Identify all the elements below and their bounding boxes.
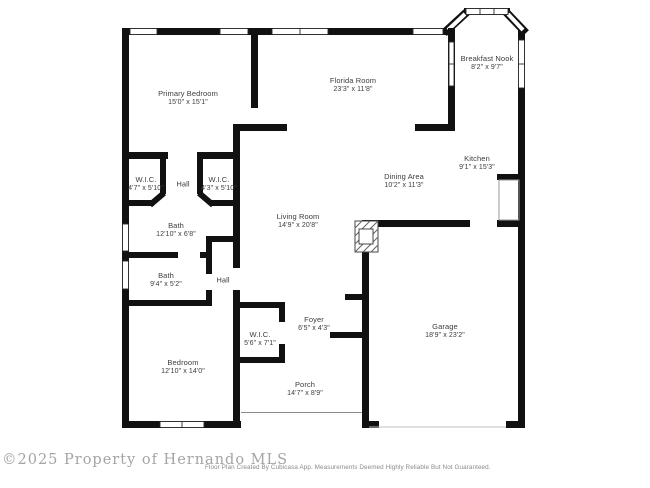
room-dims: 12'10" x 14'0" [161, 367, 205, 376]
room-name: Hall [216, 276, 229, 285]
room-label-primary-bedroom: Primary Bedroom 15'0" x 15'1" [158, 89, 218, 107]
wall-right [518, 29, 525, 428]
room-dims: 10'2" x 11'3" [384, 181, 424, 190]
disclaimer-text: Floor Plan Created By Cubicasa App. Meas… [205, 464, 491, 471]
wall-bath-notch-h [212, 236, 233, 242]
wall-bath1-bottom-l [122, 252, 178, 258]
window-bath2 [123, 261, 129, 289]
room-dims: 4'7" x 5'10" [128, 184, 164, 193]
room-label-wic-right: W.I.C. 4'3" x 5'10" [201, 175, 237, 193]
room-dims: 9'1" x 15'3" [459, 163, 495, 172]
room-name: Porch [287, 380, 323, 389]
room-dims: 8'2" x 9'7" [461, 63, 514, 72]
room-name: W.I.C. [201, 175, 237, 184]
room-label-dining-area: Dining Area 10'2" x 11'3" [384, 172, 424, 190]
wall-garage-top-l [368, 220, 470, 227]
hall-chamfer-walls [150, 193, 213, 205]
wall-pantry-stub [497, 174, 519, 180]
room-name: Hall [176, 180, 189, 189]
fireplace [355, 221, 378, 252]
room-label-bedroom: Bedroom 12'10" x 14'0" [161, 358, 205, 376]
room-dims: 14'9" x 20'8" [277, 221, 320, 230]
room-dims: 6'5" x 4'3" [298, 324, 330, 333]
room-name: Primary Bedroom [158, 89, 218, 98]
room-label-kitchen: Kitchen 9'1" x 15'3" [459, 154, 495, 172]
window-florida-1 [220, 29, 248, 35]
wall-living-left-upper [233, 124, 240, 268]
wall-wic3-right-upper [279, 302, 285, 322]
room-name: W.I.C. [244, 330, 276, 339]
room-dims: 5'6" x 7'1" [244, 339, 276, 348]
wall-bath2-hall-upper [206, 258, 212, 274]
wall-primary-florida [251, 28, 258, 108]
room-name: Florida Room [330, 76, 376, 85]
room-dims: 18'9" x 23'2" [425, 331, 465, 340]
room-name: Bedroom [161, 358, 205, 367]
wall-bath-notch-v [206, 236, 212, 258]
room-name: W.I.C. [128, 175, 164, 184]
room-label-breakfast-nook: Breakfast Nook 8'2" x 9'7" [461, 54, 514, 72]
fireplace-insert [359, 229, 373, 244]
room-label-wic-left: W.I.C. 4'7" x 5'10" [128, 175, 164, 193]
room-label-bath-2: Bath 9'4" x 5'2" [150, 271, 182, 289]
room-label-florida-room: Florida Room 23'3" x 11'8" [330, 76, 376, 94]
room-name: Garage [425, 322, 465, 331]
room-label-wic-foyer: W.I.C. 5'6" x 7'1" [244, 330, 276, 348]
wall-bedroom-top [122, 300, 212, 306]
room-dims: 12'10" x 6'8" [156, 230, 196, 239]
room-dims: 14'7" x 8'9" [287, 389, 323, 398]
pantry-closet-outline [499, 180, 519, 220]
room-name: Breakfast Nook [461, 54, 514, 63]
room-label-living-room: Living Room 14'9" x 20'8" [277, 212, 320, 230]
room-label-bath-1: Bath 12'10" x 6'8" [156, 221, 196, 239]
room-name: Bath [156, 221, 196, 230]
room-label-garage: Garage 18'9" x 23'2" [425, 322, 465, 340]
window-florida-2 [413, 29, 443, 35]
window-bay-top [466, 9, 508, 15]
room-dims: 4'3" x 5'10" [201, 184, 237, 193]
room-name: Foyer [298, 315, 330, 324]
room-name: Kitchen [459, 154, 495, 163]
room-dims: 23'3" x 11'8" [330, 85, 376, 94]
room-name: Living Room [277, 212, 320, 221]
window-bath1 [123, 224, 129, 251]
floorplan-canvas: Primary Bedroom 15'0" x 15'1" Florida Ro… [0, 0, 650, 488]
room-label-hall-upper: Hall [176, 180, 189, 189]
room-name: Dining Area [384, 172, 424, 181]
wall-garage-top-r [497, 220, 519, 227]
room-label-hall-lower: Hall [216, 276, 229, 285]
room-label-foyer: Foyer 6'5" x 4'3" [298, 315, 330, 333]
floorplan-drawing [0, 0, 650, 488]
room-label-porch: Porch 14'7" x 8'9" [287, 380, 323, 398]
wall-right-foot [506, 421, 525, 428]
room-dims: 15'0" x 15'1" [158, 98, 218, 107]
room-name: Bath [150, 271, 182, 280]
wall-foyer-stub [345, 294, 362, 300]
room-dims: 9'4" x 5'2" [150, 280, 182, 289]
window-primary-1 [130, 29, 157, 35]
wall-wic3-top [235, 302, 283, 308]
wall-wic3-bottom [235, 357, 285, 363]
wall-florida-living [233, 124, 287, 131]
wall-foyer-bottom [330, 332, 362, 338]
